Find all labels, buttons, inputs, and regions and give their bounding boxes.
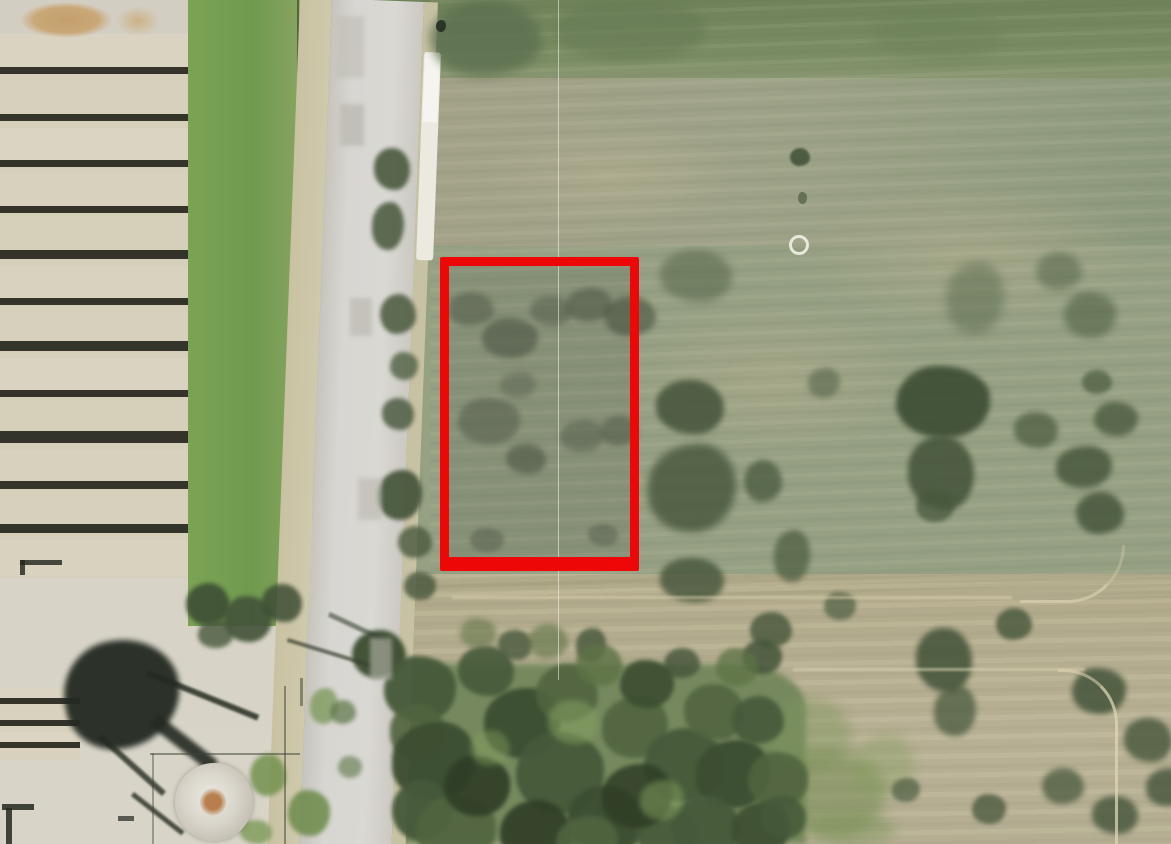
lumber-pile bbox=[116, 6, 160, 36]
tree-blob bbox=[458, 646, 514, 696]
shrub-blob bbox=[774, 530, 810, 582]
shrub-blob bbox=[790, 148, 810, 166]
shrub-blob bbox=[390, 352, 418, 380]
shrub-blob bbox=[374, 148, 410, 190]
lumber-stack-row bbox=[0, 266, 190, 305]
water-tower-tank-rust bbox=[200, 788, 226, 816]
shadow-bar bbox=[300, 678, 303, 706]
shadow-bar bbox=[452, 596, 1012, 599]
shadow-bar bbox=[370, 638, 392, 680]
lumber-stack-row bbox=[0, 732, 80, 748]
shrub-blob bbox=[808, 368, 840, 398]
shrub-blob bbox=[398, 526, 432, 558]
shadow-bar bbox=[152, 753, 154, 844]
lumber-stack-row bbox=[0, 358, 190, 397]
shrub-blob bbox=[744, 460, 782, 502]
shrub-blob bbox=[1036, 252, 1082, 290]
lumber-yard bbox=[0, 34, 190, 578]
aerial-map-canvas[interactable] bbox=[0, 0, 1171, 844]
shadow-bar bbox=[150, 753, 300, 755]
shrub-blob bbox=[380, 294, 416, 334]
shrub-blob bbox=[330, 700, 356, 724]
shrub-blob bbox=[798, 192, 807, 204]
shrub-blob bbox=[660, 250, 732, 302]
shrub-blob bbox=[288, 790, 330, 836]
tree-blob bbox=[444, 756, 510, 816]
lumber-stack-row bbox=[0, 450, 190, 489]
shrub-blob bbox=[896, 366, 990, 438]
tree-blob bbox=[620, 660, 674, 708]
lumber-stack-row bbox=[0, 34, 190, 74]
tree-blob bbox=[460, 618, 496, 648]
lumber-stack-row bbox=[0, 496, 190, 533]
shrub-blob bbox=[1056, 446, 1112, 488]
shrub-blob bbox=[262, 584, 302, 622]
shadow-bar bbox=[340, 104, 364, 146]
lumber-stack-row bbox=[0, 404, 190, 443]
shadow-bar bbox=[336, 16, 364, 78]
shrub-blob bbox=[198, 620, 234, 648]
shrub-blob bbox=[1064, 292, 1116, 338]
lumber-stack-row bbox=[0, 174, 190, 213]
sidewalk-path-bright bbox=[422, 52, 440, 123]
shrub-blob bbox=[934, 686, 976, 736]
shrub-blob bbox=[1094, 402, 1138, 436]
shadow-bar bbox=[793, 668, 1085, 671]
shrub-blob bbox=[916, 490, 954, 522]
shadow-bar bbox=[20, 560, 62, 565]
lumber-stack-row bbox=[0, 540, 190, 576]
shrub-blob bbox=[972, 794, 1006, 824]
shrub-blob bbox=[372, 202, 404, 250]
tree-blob bbox=[640, 780, 684, 820]
lumber-stack-row bbox=[0, 81, 190, 121]
shrub-blob bbox=[378, 470, 422, 520]
shrub-blob bbox=[250, 754, 286, 796]
tree-blob bbox=[528, 624, 568, 658]
parcel-highlight-outline bbox=[440, 257, 639, 571]
shrub-blob bbox=[1014, 412, 1058, 448]
tree-blob bbox=[716, 648, 758, 686]
shrub-blob bbox=[1124, 718, 1171, 762]
tree-blob bbox=[576, 644, 622, 686]
shrub-blob bbox=[338, 756, 362, 778]
lumber-stack-row bbox=[0, 220, 190, 259]
shrub-blob bbox=[404, 572, 436, 600]
shadow-bar bbox=[20, 560, 25, 575]
shadow-bar bbox=[284, 686, 286, 844]
lumber-stack-row bbox=[0, 312, 190, 351]
shrub-blob bbox=[430, 0, 542, 76]
tree-blob bbox=[732, 696, 784, 744]
shrub-blob bbox=[1076, 492, 1124, 534]
shrub-blob bbox=[916, 628, 972, 692]
shrub-blob bbox=[648, 444, 736, 532]
shadow-bar bbox=[350, 298, 372, 336]
lumber-pile bbox=[20, 2, 112, 38]
shrub-blob bbox=[656, 380, 724, 434]
shadow-bar bbox=[358, 478, 382, 520]
shrub-blob bbox=[872, 8, 1002, 60]
ground-ring-mark bbox=[789, 235, 809, 255]
shrub-blob bbox=[1082, 370, 1112, 394]
tree-blob bbox=[470, 730, 510, 766]
trail-arc bbox=[1058, 669, 1118, 844]
shrub-blob bbox=[554, 0, 706, 60]
tree-blob bbox=[548, 700, 598, 744]
shadow-bar bbox=[118, 816, 134, 821]
grass-patch bbox=[810, 814, 896, 844]
shadow-bar bbox=[6, 808, 12, 844]
shrub-blob bbox=[436, 20, 446, 32]
shrub-blob bbox=[382, 398, 414, 430]
shrub-blob bbox=[996, 608, 1032, 640]
lumber-stack-row bbox=[0, 128, 190, 167]
shrub-blob bbox=[946, 262, 1004, 334]
shrub-blob bbox=[892, 778, 920, 802]
tree-blob bbox=[760, 796, 806, 838]
